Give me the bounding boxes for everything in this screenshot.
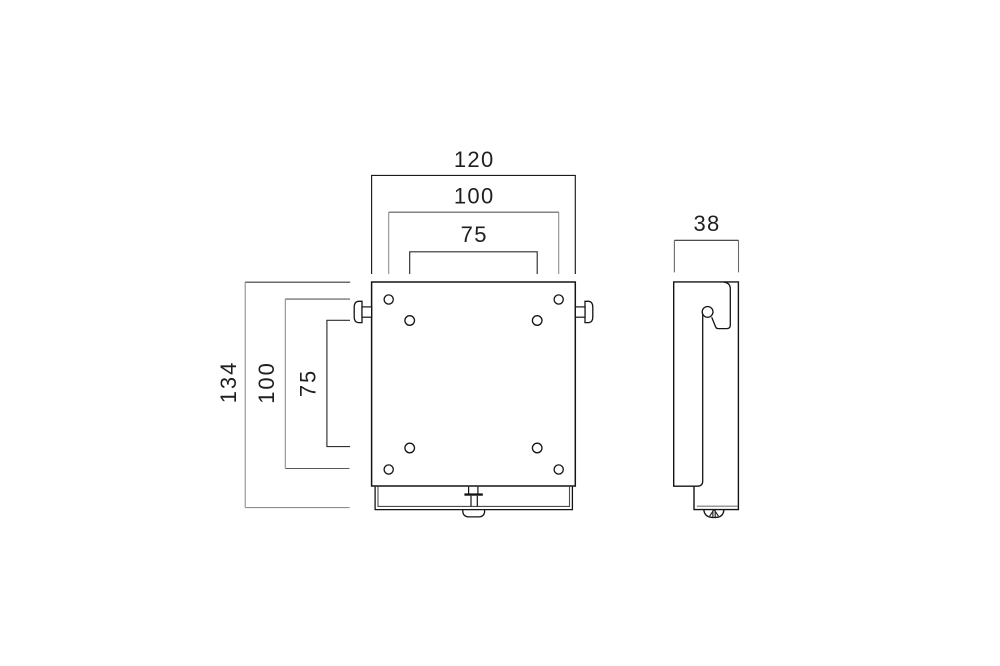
svg-text:100: 100: [454, 184, 495, 209]
svg-text:134: 134: [216, 361, 241, 403]
svg-text:120: 120: [454, 147, 495, 172]
svg-text:75: 75: [296, 369, 321, 397]
svg-text:75: 75: [461, 222, 488, 247]
svg-text:38: 38: [693, 211, 720, 236]
svg-text:100: 100: [254, 361, 279, 403]
